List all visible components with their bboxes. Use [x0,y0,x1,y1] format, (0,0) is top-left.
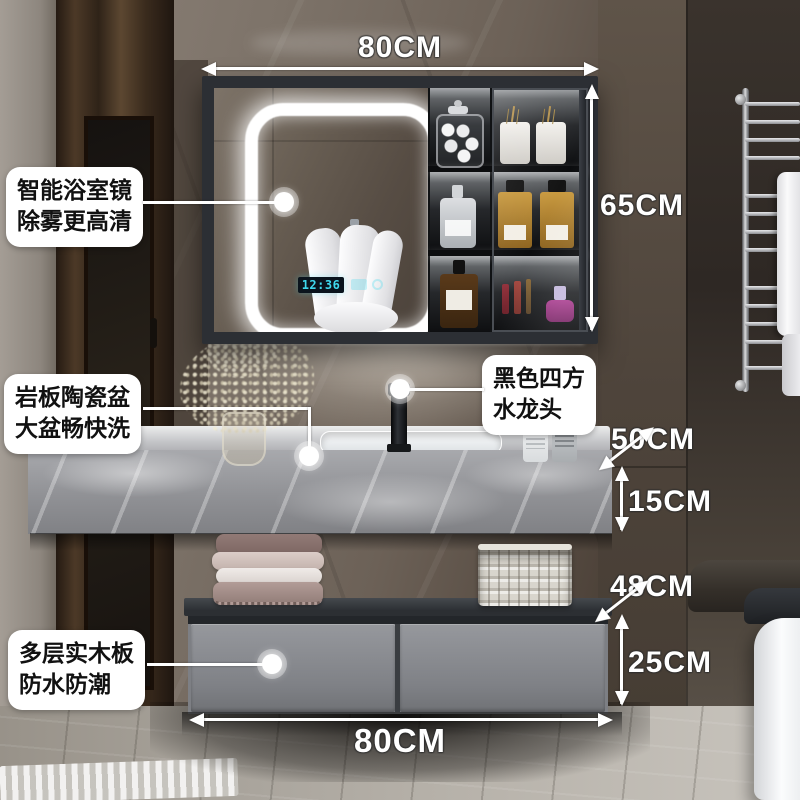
cotton-ball-jar [436,114,484,168]
callout-wood-board-line2: 防水防潮 [19,669,134,700]
dimension-mirror-width: 80CM [330,31,470,65]
radiator-bar [745,138,800,142]
glass-door-stile [579,90,586,330]
callout-smart-mirror-line2: 除雾更高清 [17,206,132,237]
callout-stone-basin-line2: 大盆畅快洗 [15,413,130,444]
callout-black-faucet-line1: 黑色四方 [493,363,585,394]
dimension-arrow-mirror-width [206,67,592,70]
mirror-clock-display[interactable]: 12:36 [298,277,344,293]
arrowhead-icon [201,62,216,76]
callout-point-marker [262,654,282,674]
callout-leader-line [143,201,284,204]
hanging-towel-fold [782,334,800,396]
arrowhead-icon [585,317,599,332]
lotion-pump-bottle [440,198,476,248]
callout-smart-mirror-line1: 智能浴室镜 [17,175,132,206]
mirror-cabinet: 12:36 [202,76,598,344]
mirror-touch-button[interactable] [351,279,367,290]
dimension-counter-thickness: 15CM [628,485,712,519]
door-handle [150,318,157,348]
callout-point-marker [274,192,294,212]
arrowhead-icon [598,713,613,727]
callout-leader-line [147,663,273,666]
callout-leader-line [143,407,311,410]
vanity-drawer-right [400,624,605,712]
callout-leader-line [408,388,484,391]
hanging-towel [777,172,800,336]
radiator-bar [745,120,800,124]
mirror-touch-button[interactable] [372,279,383,290]
callout-leader-line [308,407,311,451]
callout-wood-board: 多层实木板 防水防潮 [8,630,145,710]
callout-wood-board-line1: 多层实木板 [19,638,134,669]
radiator-mount [735,380,746,391]
arrowhead-icon [615,614,629,629]
callout-stone-basin: 岩板陶瓷盆 大盆畅快洗 [4,374,141,454]
callout-point-marker [390,379,410,399]
dimension-mirror-height: 65CM [600,189,684,223]
callout-black-faucet-line2: 水龙头 [493,394,585,425]
arrowhead-icon [585,84,599,99]
countertop-marble-front [28,450,612,534]
arrowhead-icon [615,466,629,481]
amber-pump-bottle [440,274,478,328]
folded-towel [216,534,322,554]
cabinet-shelf-unit [428,88,588,332]
bathrobe-reflection [314,302,398,332]
dimension-arrow-cabinet-width [194,718,606,721]
wicker-basket [478,544,572,606]
callout-black-faucet: 黑色四方 水龙头 [482,355,596,435]
arrowhead-icon [584,62,599,76]
folded-towel [213,582,323,605]
arrowhead-icon [615,517,629,532]
callout-stone-basin-line1: 岩板陶瓷盆 [15,382,130,413]
cabinet-glass-door[interactable] [492,88,588,332]
vanity-drawer-left [191,624,395,712]
towel-radiator-rail [742,88,749,392]
arrowhead-icon [189,713,204,727]
faucet-base [387,444,411,452]
wicker-basket-rim [478,544,572,550]
dimension-arrow-mirror-height [590,88,593,330]
arrowhead-icon [615,691,629,706]
radiator-bar [745,156,800,160]
toilet [754,618,800,800]
bathroom-vanity-product-photo: 12:36 [0,0,800,800]
dimension-cabinet-width: 80CM [320,722,480,760]
radiator-bar [745,102,800,106]
callout-point-marker [299,446,319,466]
glass-vase [222,412,266,466]
led-smart-mirror: 12:36 [214,88,428,332]
vanity-drawer-reveal [188,616,608,624]
dimension-cabinet-height: 25CM [628,646,712,680]
callout-smart-mirror: 智能浴室镜 除雾更高清 [6,167,143,247]
drawer-gap [395,624,400,712]
